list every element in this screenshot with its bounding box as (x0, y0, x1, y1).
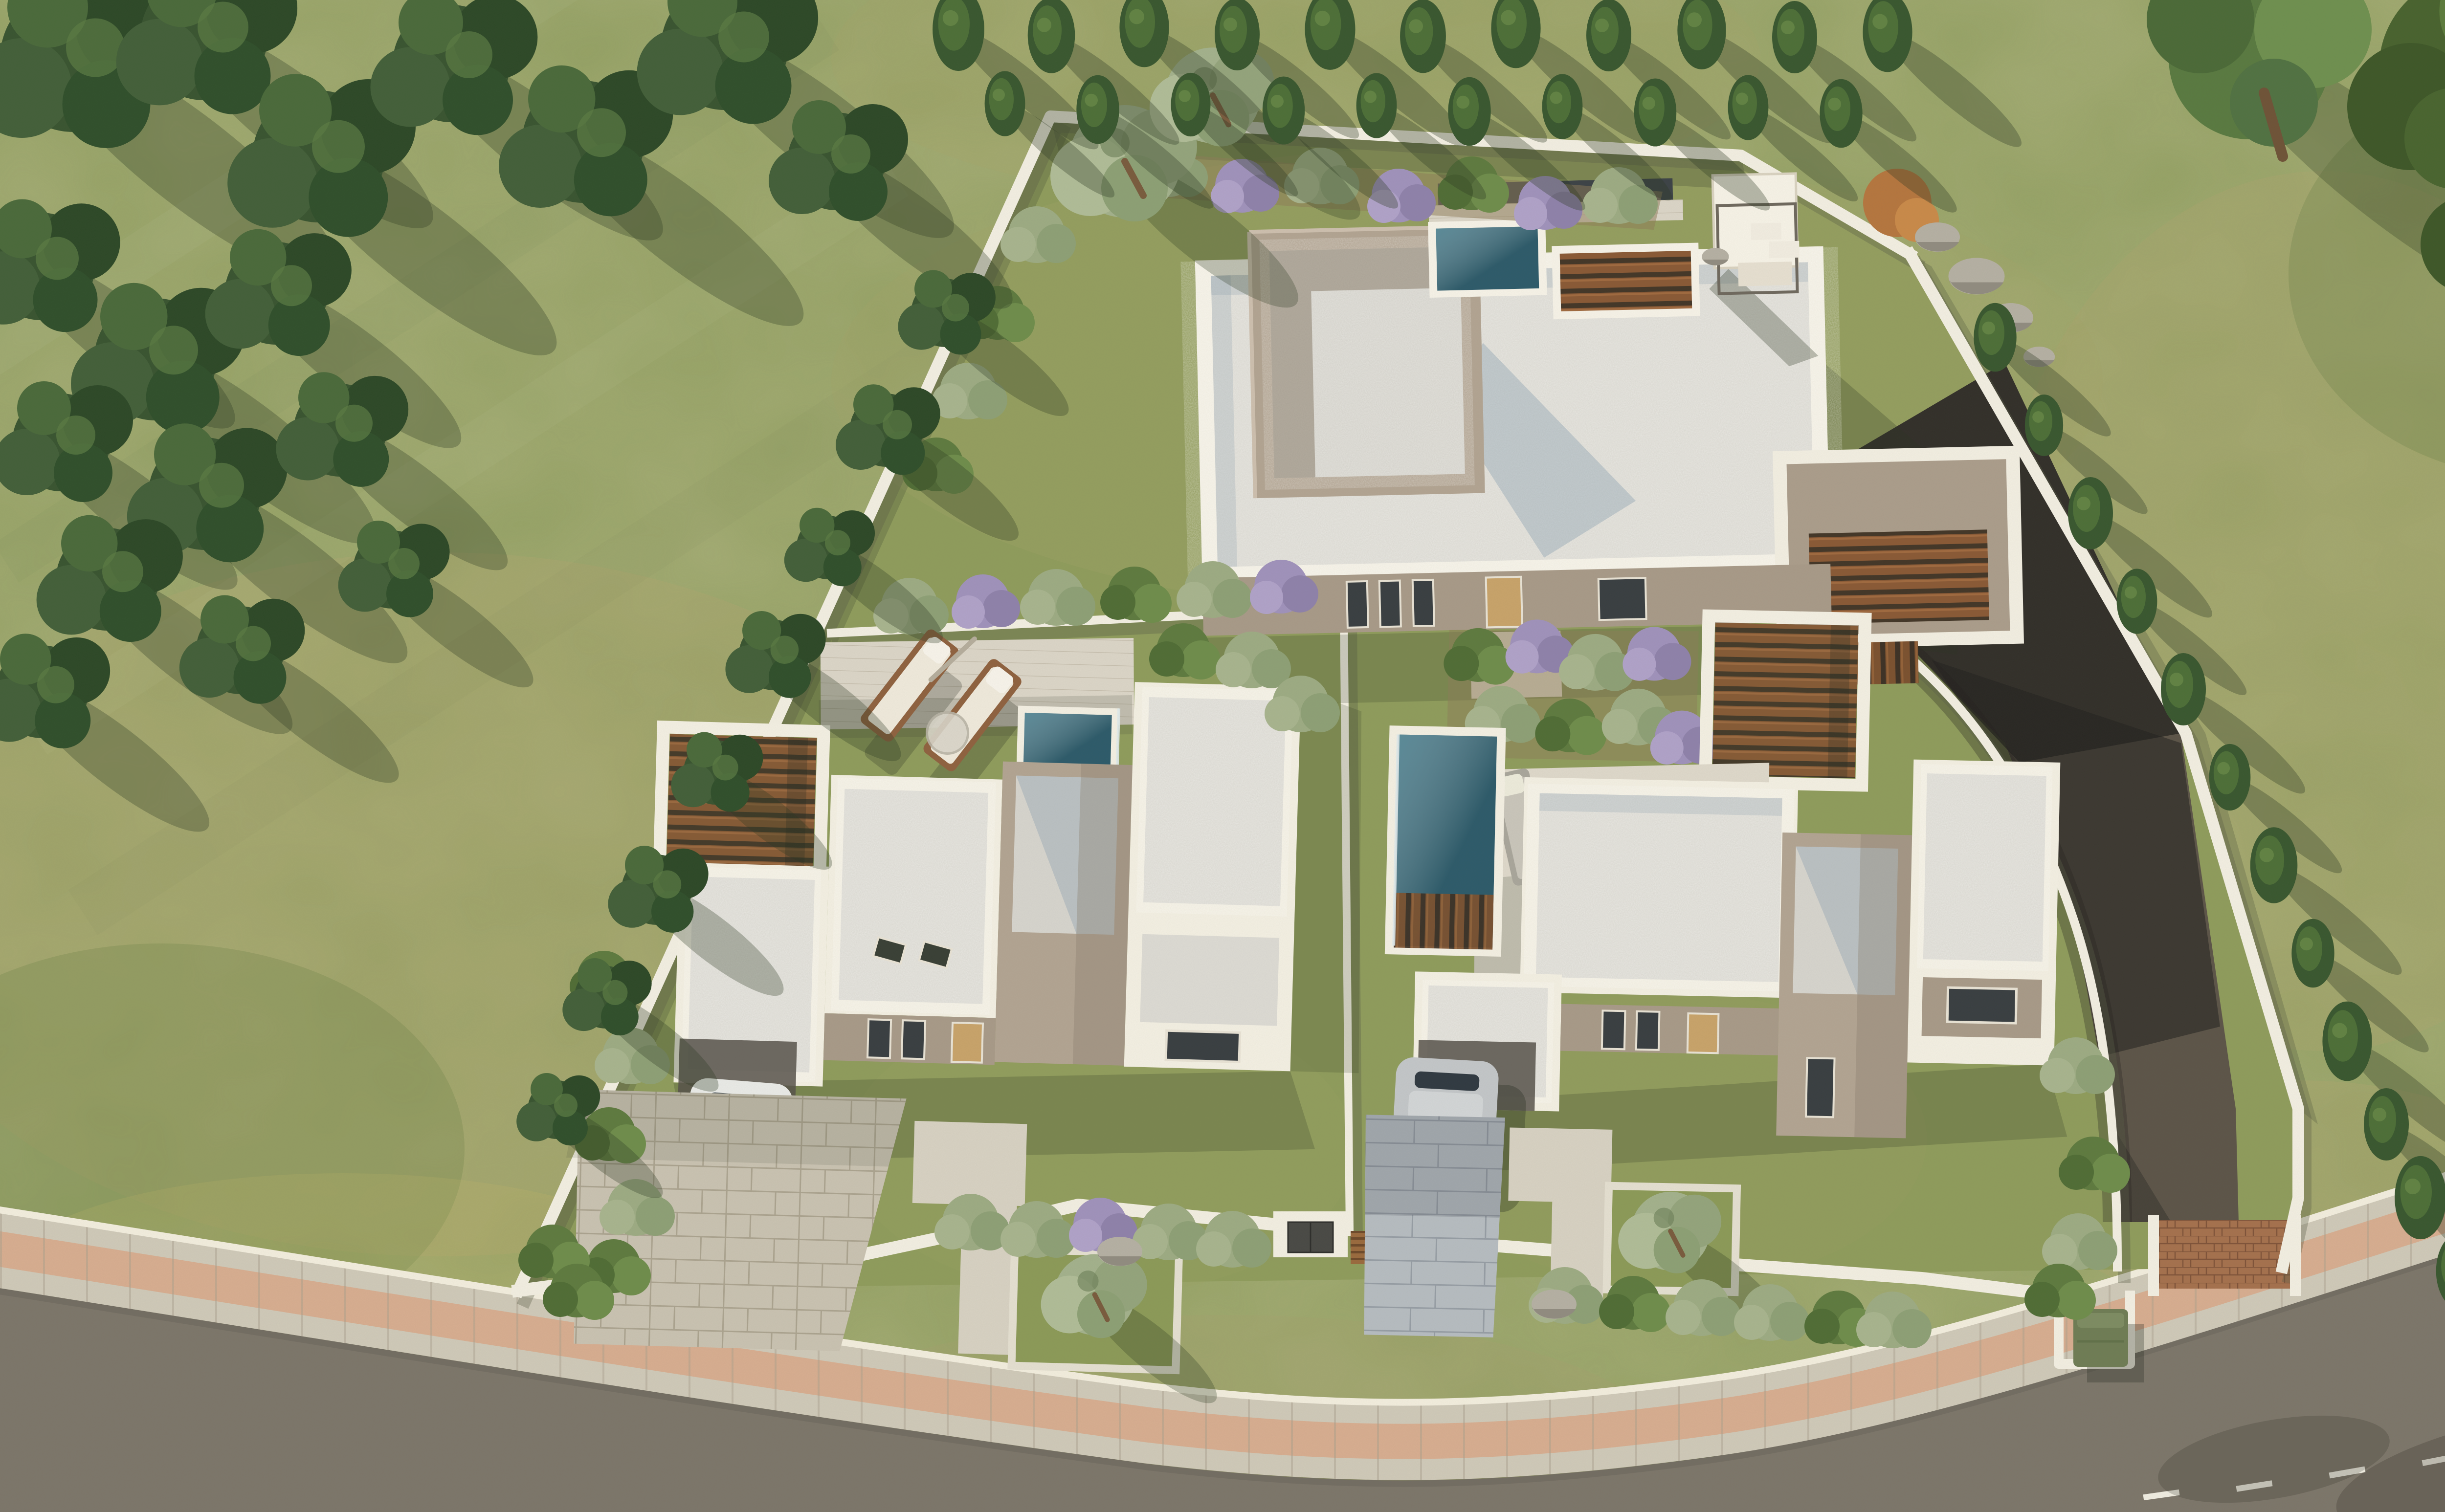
aerial-render (0, 0, 2445, 1512)
film-grain-overlay (0, 0, 2445, 1512)
scene-canvas (0, 0, 2445, 1512)
